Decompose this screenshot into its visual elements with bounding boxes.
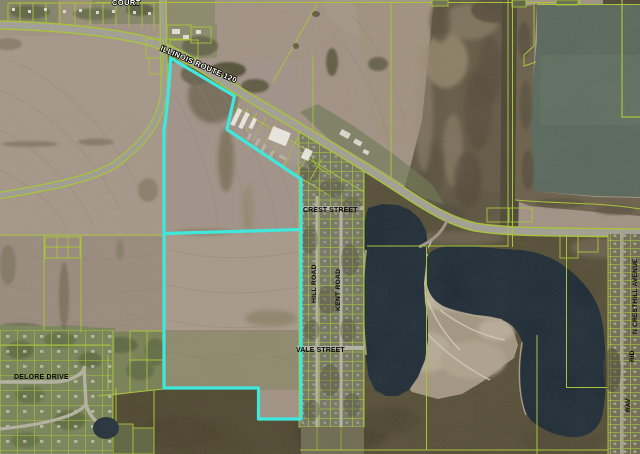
svg-text:N CRESTHILL AVENUE: N CRESTHILL AVENUE — [632, 258, 639, 334]
svg-text:CREST STREET: CREST STREET — [303, 207, 358, 214]
svg-text:COURT: COURT — [112, 0, 141, 7]
svg-text:RID: RID — [629, 350, 636, 362]
svg-text:RAV: RAV — [625, 398, 632, 412]
svg-text:DELORE DRIVE: DELORE DRIVE — [14, 374, 69, 381]
svg-text:VALE STREET: VALE STREET — [296, 347, 345, 354]
svg-text:HILL ROAD: HILL ROAD — [311, 264, 318, 303]
svg-text:KENT ROAD: KENT ROAD — [335, 269, 342, 311]
